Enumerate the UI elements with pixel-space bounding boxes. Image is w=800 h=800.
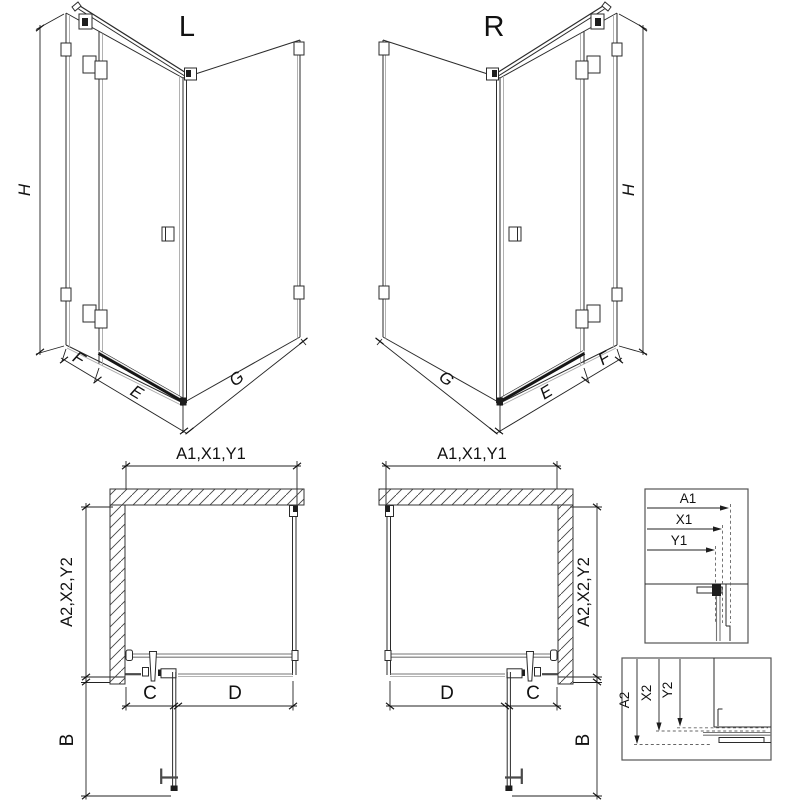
detail-bottom-dim2: X2 — [639, 685, 654, 702]
door-handle — [162, 227, 174, 241]
detail-top-dim2: X1 — [676, 512, 693, 527]
door-hinge-top — [83, 56, 107, 79]
dim-label-door-right: E — [536, 381, 556, 403]
plan-dim-d-right: D — [440, 683, 454, 704]
detail-box-bottom — [622, 658, 771, 760]
detail-top-dim1: A1 — [680, 491, 697, 506]
detail-top-dim3: Y1 — [671, 533, 688, 548]
door-hinge-bottom — [83, 305, 107, 328]
detail-bottom-dim3: Y2 — [660, 682, 675, 699]
iso-view-left-geometry — [36, 2, 308, 434]
view-label-left: L — [179, 11, 195, 43]
open-door — [161, 672, 179, 791]
dim-label-height-right: H — [619, 183, 638, 196]
plan-dim-side-left: A2,X2,Y2 — [58, 557, 76, 627]
detail-box-top — [645, 489, 748, 643]
dim-label-door-left: E — [127, 381, 147, 403]
wall-hatch-side-right-plan — [558, 505, 573, 684]
corner-profile-section-bottom — [703, 709, 771, 743]
view-label-right: R — [484, 11, 505, 43]
door-pivot-hardware — [143, 668, 177, 678]
dim-label-side-left: G — [226, 367, 248, 390]
wall-tab-icon — [294, 286, 304, 299]
plan-dim-c-left: C — [143, 683, 157, 704]
plan-dim-b-right: B — [573, 734, 594, 747]
wall-tab-icon — [294, 42, 304, 55]
wall-tab-icon — [61, 288, 71, 301]
plan-dim-side-right: A2,X2,Y2 — [575, 557, 593, 627]
plan-dim-top-right: A1,X1,Y1 — [437, 445, 507, 463]
shower-enclosure-drawing: L R H F E G H F E G A1,X1,Y1 A2,X2,Y2 C … — [0, 0, 800, 800]
wall-hatch-top-right-plan — [379, 489, 573, 505]
technical-drawing-page: L R H F E G H F E G A1,X1,Y1 A2,X2,Y2 C … — [0, 0, 800, 800]
plan-dim-b-left: B — [57, 734, 78, 747]
iso-view-right-geometry — [376, 2, 648, 434]
corner-profile-section-top — [697, 584, 730, 641]
detail-bottom-dim1: A2 — [617, 692, 632, 709]
wall-hatch-side-left-plan — [110, 505, 125, 684]
dim-label-height-left: H — [15, 183, 34, 196]
plan-dim-d-left: D — [228, 683, 242, 704]
plan-dim-c-right: C — [526, 683, 540, 704]
wall-hatch-top-left-plan — [110, 489, 304, 505]
wall-tab-icon — [61, 43, 71, 56]
dim-label-side-right: G — [435, 367, 457, 390]
plan-dim-top-left: A1,X1,Y1 — [176, 445, 246, 463]
